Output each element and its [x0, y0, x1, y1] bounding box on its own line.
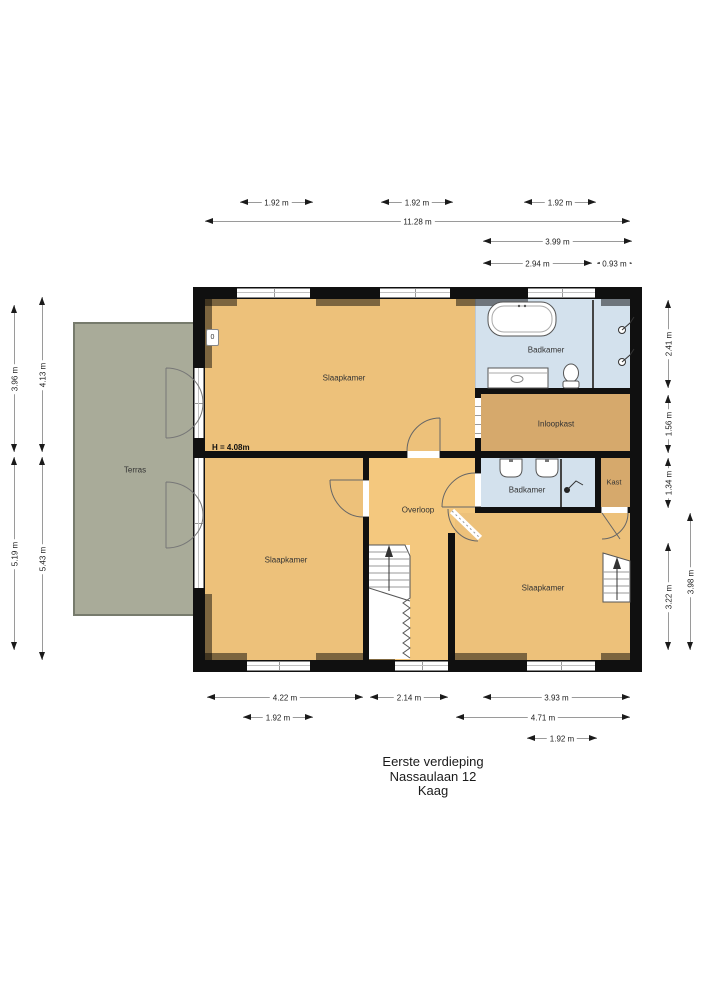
- dimension-label: 4.71 m: [528, 713, 558, 722]
- dimension-label: 2.94 m: [522, 259, 552, 268]
- dimension: 1.92 m: [381, 196, 453, 210]
- wall-shadow: [456, 299, 528, 306]
- wall-shadow: [316, 299, 380, 306]
- arrow-down-icon: [665, 445, 671, 453]
- dimension-label: 1.92 m: [547, 734, 577, 743]
- arrow-down-icon: [665, 500, 671, 508]
- dimension-label: 1.92 m: [402, 198, 432, 207]
- dimension: 4.22 m: [207, 691, 363, 705]
- room-label-inloopkast: Inloopkast: [538, 420, 574, 429]
- door-opening: [475, 473, 481, 507]
- arrow-up-icon: [665, 458, 671, 466]
- arrow-left-icon: [370, 694, 378, 700]
- dimension-label: 3.98 m: [686, 566, 695, 596]
- arrow-up-icon: [39, 297, 45, 305]
- dimension-label: 4.22 m: [270, 693, 300, 702]
- dimension: 5.43 m: [36, 457, 50, 660]
- arrow-up-icon: [39, 457, 45, 465]
- arrow-up-icon: [665, 395, 671, 403]
- window: [527, 661, 595, 671]
- dimension-label: 11.28 m: [400, 217, 434, 226]
- arrow-down-icon: [11, 444, 17, 452]
- window: [528, 288, 595, 298]
- arrow-up-icon: [665, 543, 671, 551]
- room-label-slaapkamer-br: Slaapkamer: [522, 584, 565, 593]
- dimension: 4.13 m: [36, 297, 50, 452]
- dimension-label: 3.96 m: [10, 363, 19, 393]
- dimension: 1.34 m: [662, 458, 676, 508]
- dimension: 3.98 m: [684, 513, 698, 650]
- floorplan-canvas: 0 H = 4.08m Terras Slaapkamer Badkamer I…: [0, 0, 707, 1000]
- dimension: 0.93 m: [597, 257, 632, 271]
- bathroom-top-floor: [475, 299, 630, 388]
- arrow-right-icon: [305, 714, 313, 720]
- french-door-opening: [194, 368, 204, 438]
- arrow-right-icon: [445, 199, 453, 205]
- dimension: 1.92 m: [524, 196, 596, 210]
- arrow-left-icon: [483, 238, 491, 244]
- dimension-label: 3.99 m: [542, 237, 572, 246]
- room-label-badkamer-top: Badkamer: [528, 346, 564, 355]
- dimension: 1.56 m: [662, 395, 676, 453]
- dimension: 2.41 m: [662, 300, 676, 388]
- radiator-marker: 0: [206, 329, 219, 346]
- door-opening: [407, 451, 440, 458]
- arrow-left-icon: [524, 199, 532, 205]
- arrow-left-icon: [243, 714, 251, 720]
- dimension-label: 1.56 m: [664, 409, 673, 439]
- dimension-label: 1.92 m: [261, 198, 291, 207]
- plan-title-floor: Eerste verdieping: [283, 755, 583, 770]
- room-boundary-line: [475, 299, 476, 388]
- dimension: 2.14 m: [370, 691, 448, 705]
- dimension: 3.93 m: [483, 691, 630, 705]
- room-label-slaapkamer-tl: Slaapkamer: [323, 374, 366, 383]
- arrow-up-icon: [11, 305, 17, 313]
- arrow-right-icon: [622, 218, 630, 224]
- room-label-overloop: Overloop: [402, 506, 434, 515]
- room-label-terras: Terras: [124, 466, 146, 475]
- dimension-label: 1.34 m: [664, 468, 673, 498]
- arrow-right-icon: [355, 694, 363, 700]
- wall-shadow: [454, 653, 527, 660]
- arrow-right-icon: [589, 735, 597, 741]
- arrow-right-icon: [588, 199, 596, 205]
- dimension-label: 3.22 m: [664, 581, 673, 611]
- dimension-label: 5.43 m: [38, 543, 47, 573]
- wall-interior: [475, 451, 630, 458]
- wall-exterior-right: [630, 287, 642, 672]
- arrow-down-icon: [39, 444, 45, 452]
- wall-shadow: [316, 653, 395, 660]
- bathroom-mid-floor: [481, 458, 595, 507]
- doorless-passage: [475, 398, 481, 438]
- dimension-label: 1.92 m: [263, 713, 293, 722]
- dimension: 5.19 m: [8, 457, 22, 650]
- arrow-right-icon: [622, 714, 630, 720]
- plan-title-address: Nassaulaan 12: [283, 770, 583, 785]
- dimension-label: 3.93 m: [541, 693, 571, 702]
- dimension-label: 5.19 m: [10, 538, 19, 568]
- plan-title-city: Kaag: [283, 784, 583, 799]
- dimension-label: 1.92 m: [545, 198, 575, 207]
- landing-floor: [369, 513, 455, 533]
- dimension: 1.92 m: [243, 711, 313, 725]
- wall-shadow: [601, 299, 630, 306]
- wall-interior: [448, 533, 455, 660]
- arrow-down-icon: [687, 642, 693, 650]
- dimension-label: 2.41 m: [664, 329, 673, 359]
- arrow-right-icon: [622, 694, 630, 700]
- french-door-opening: [194, 458, 204, 588]
- arrow-down-icon: [665, 642, 671, 650]
- plan-title-block: Eerste verdieping Nassaulaan 12 Kaag: [283, 755, 583, 799]
- dimension-label: 2.14 m: [394, 693, 424, 702]
- door-opening: [363, 480, 369, 517]
- arrow-right-icon: [624, 238, 632, 244]
- wall-shadow: [601, 653, 630, 660]
- dimension: 3.99 m: [483, 235, 632, 249]
- dimension: 2.94 m: [483, 257, 592, 271]
- dimension: 3.22 m: [662, 543, 676, 650]
- arrow-left-icon: [483, 694, 491, 700]
- arrow-right-icon: [584, 260, 592, 266]
- room-label-slaapkamer-bl: Slaapkamer: [265, 556, 308, 565]
- wall-interior: [475, 388, 630, 394]
- dimension: 4.71 m: [456, 711, 630, 725]
- room-label-kast: Kast: [606, 478, 621, 487]
- shower-partition-line: [592, 300, 594, 388]
- arrow-left-icon: [527, 735, 535, 741]
- arrow-left-icon: [456, 714, 464, 720]
- arrow-down-icon: [665, 380, 671, 388]
- arrow-left-icon: [207, 694, 215, 700]
- dimension: 11.28 m: [205, 215, 630, 229]
- window: [247, 661, 310, 671]
- arrow-up-icon: [11, 457, 17, 465]
- ceiling-height-note: H = 4.08m: [212, 443, 250, 452]
- arrow-down-icon: [39, 652, 45, 660]
- arrow-left-icon: [205, 218, 213, 224]
- arrow-left-icon: [240, 199, 248, 205]
- shower-partition-line: [560, 459, 562, 507]
- dimension-label: 0.93 m: [599, 259, 629, 268]
- arrow-right-icon: [305, 199, 313, 205]
- window: [380, 288, 450, 298]
- door-opening: [601, 507, 628, 513]
- room-label-badkamer-mid: Badkamer: [509, 486, 545, 495]
- arrow-up-icon: [687, 513, 693, 521]
- window: [395, 661, 448, 671]
- arrow-right-icon: [440, 694, 448, 700]
- dimension-label: 4.13 m: [38, 359, 47, 389]
- arrow-left-icon: [483, 260, 491, 266]
- dimension: 1.92 m: [240, 196, 313, 210]
- window: [237, 288, 310, 298]
- arrow-left-icon: [381, 199, 389, 205]
- arrow-up-icon: [665, 300, 671, 308]
- wall-shadow: [205, 594, 212, 660]
- arrow-down-icon: [11, 642, 17, 650]
- dimension: 1.92 m: [527, 732, 597, 746]
- landing-floor: [369, 533, 448, 660]
- dimension: 3.96 m: [8, 305, 22, 452]
- wall-interior: [595, 458, 601, 507]
